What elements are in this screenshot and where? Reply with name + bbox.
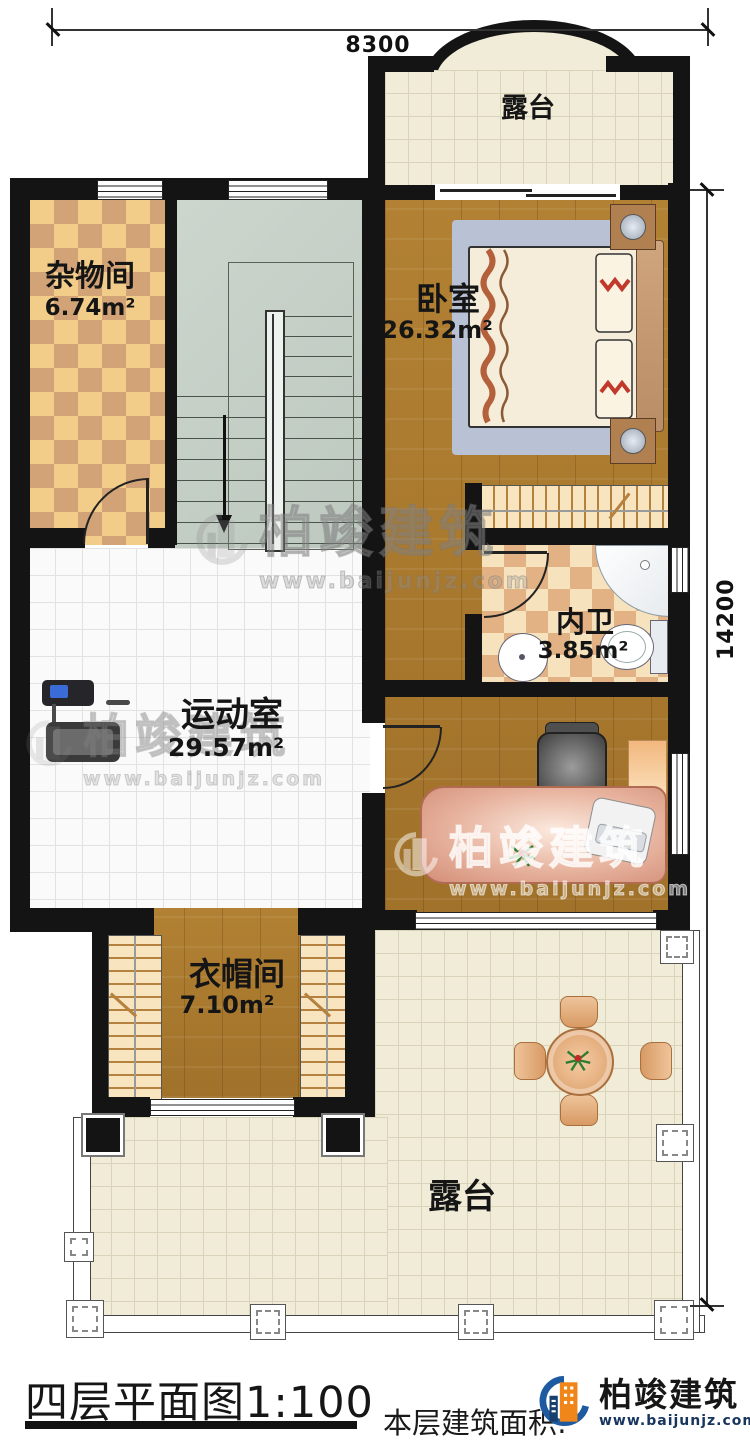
wall <box>362 680 477 697</box>
sliding-door <box>435 184 620 200</box>
patio-chair <box>560 996 598 1028</box>
brand-logo: 柏竣建筑 www.baijunjz.com <box>537 1374 750 1432</box>
patio-chair <box>514 1042 546 1080</box>
stair-rail <box>265 310 285 552</box>
room-label-gym: 运动室 <box>181 698 283 732</box>
column <box>86 1118 120 1152</box>
treadmill-screen <box>50 685 68 698</box>
sliding-door-panel <box>526 194 616 197</box>
patio-chair <box>640 1042 672 1080</box>
room-label-terrace-top: 露台 <box>501 95 555 122</box>
wall <box>92 1097 150 1117</box>
wall <box>92 908 154 935</box>
column <box>660 930 694 964</box>
dimension-label-top: 8300 <box>345 33 410 58</box>
floor-plan-canvas: 柏竣建筑 www.baijunjz.com 柏竣建筑 www.baijunjz.… <box>0 0 750 1455</box>
wall <box>368 56 385 188</box>
column <box>250 1304 286 1340</box>
room-label-storage: 杂物间 <box>45 262 135 292</box>
plant-icon <box>562 1044 594 1076</box>
nightstand-lamp-icon <box>620 214 646 240</box>
wall <box>345 908 375 1117</box>
column <box>326 1118 360 1152</box>
wall <box>10 908 95 932</box>
treadmill-belt-deck <box>53 729 113 755</box>
door-leaf <box>146 478 149 544</box>
dimension-label-right: 14200 <box>714 578 739 660</box>
brand-url: www.baijunjz.com <box>599 1414 750 1428</box>
wall <box>673 56 690 188</box>
room-label-terrace-bottom: 露台 <box>428 1180 496 1214</box>
plant-icon <box>505 838 539 872</box>
wall <box>362 178 385 723</box>
room-area-bathroom: 3.85m² <box>538 640 629 663</box>
column <box>656 1124 694 1162</box>
patio-chair <box>560 1094 598 1126</box>
room-area-storage: 6.74m² <box>45 297 136 320</box>
bed-headboard <box>636 240 664 432</box>
window <box>671 547 689 593</box>
wall <box>165 200 177 545</box>
window <box>228 180 328 200</box>
plan-title-underline <box>25 1421 357 1429</box>
wall <box>375 910 417 930</box>
wall <box>10 178 30 930</box>
shower-drain-icon <box>640 560 650 570</box>
wall <box>10 528 85 548</box>
window <box>97 180 163 200</box>
column <box>654 1300 694 1340</box>
terrace-bottom-floor-right <box>375 930 682 1315</box>
column <box>66 1300 104 1338</box>
room-area-gym: 29.57m² <box>168 735 284 760</box>
brand-name: 柏竣建筑 <box>599 1378 750 1411</box>
room-label-bathroom: 内卫 <box>556 608 614 637</box>
door-leaf <box>383 725 440 728</box>
terrace-top-floor <box>385 70 673 186</box>
wall <box>470 682 690 697</box>
sink-faucet-icon <box>519 654 525 660</box>
sliding-door <box>150 1099 295 1116</box>
down-arrow-icon <box>216 515 232 533</box>
bed-linen-pattern <box>468 246 640 424</box>
dimension-line-right <box>706 190 708 1307</box>
window <box>671 753 689 855</box>
wall <box>298 908 375 935</box>
sliding-door <box>415 912 657 930</box>
cloakroom-wardrobe-left <box>108 935 162 1105</box>
room-area-cloakroom: 7.10m² <box>180 993 275 1017</box>
nightstand-lamp-icon <box>620 428 646 454</box>
wall <box>293 1097 375 1117</box>
wall <box>470 528 690 545</box>
sliding-door-panel <box>440 189 532 192</box>
building-logo-icon <box>537 1374 591 1432</box>
dimension-line-top <box>52 29 708 31</box>
column <box>64 1232 94 1262</box>
stair-rail-centerline <box>272 314 274 544</box>
room-label-cloakroom: 衣帽间 <box>189 958 285 990</box>
terrace-railing <box>73 1315 705 1333</box>
room-label-bedroom: 卧室 <box>416 283 480 315</box>
treadmill-arm <box>106 700 130 705</box>
wall <box>92 908 108 1117</box>
column <box>458 1304 494 1340</box>
door-leaf <box>484 551 547 554</box>
wall <box>148 528 175 548</box>
wall <box>653 910 690 930</box>
room-area-bedroom: 26.32m² <box>381 318 492 342</box>
stair-direction-line <box>223 415 226 517</box>
